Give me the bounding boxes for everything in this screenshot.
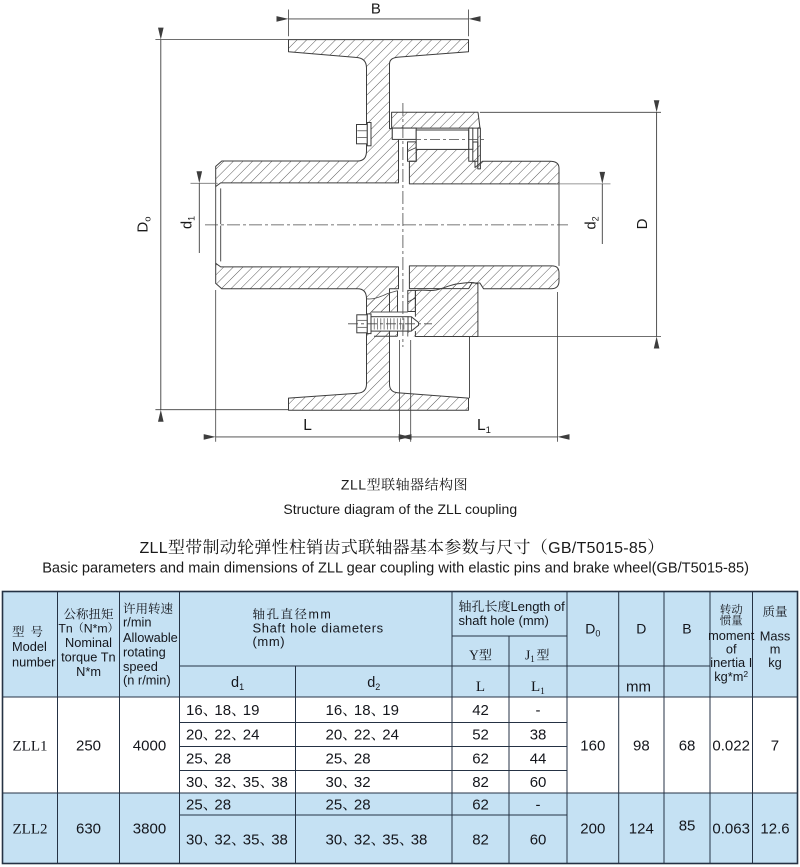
svg-text:N*m: N*m [76, 664, 101, 679]
svg-text:kg*m2: kg*m2 [714, 669, 748, 684]
svg-text:32: 32 [354, 832, 371, 849]
svg-text:19: 19 [382, 702, 399, 719]
svg-text:82: 82 [472, 774, 489, 791]
svg-text:24: 24 [382, 726, 399, 743]
svg-text:r/min: r/min [123, 615, 151, 630]
svg-text:32: 32 [214, 774, 231, 791]
svg-text:12.6: 12.6 [760, 821, 789, 838]
svg-text:(mm): (mm) [253, 634, 286, 649]
svg-text:-: - [536, 702, 541, 719]
svg-text:250: 250 [76, 738, 101, 755]
svg-text:inertia I: inertia I [710, 655, 752, 670]
svg-text:20: 20 [326, 726, 343, 743]
svg-text:44: 44 [530, 750, 547, 767]
svg-text:25: 25 [186, 750, 203, 767]
svg-text:160: 160 [580, 738, 605, 755]
svg-text:3800: 3800 [133, 821, 166, 838]
svg-text:30: 30 [186, 832, 203, 849]
svg-text:(n r/min): (n r/min) [123, 673, 171, 688]
svg-text:kg: kg [768, 655, 782, 670]
svg-text:Tn: Tn [58, 622, 73, 636]
svg-text:ZLL1: ZLL1 [13, 739, 48, 755]
svg-text:ZLL: ZLL [341, 477, 367, 493]
svg-text:82: 82 [472, 832, 489, 849]
svg-text:D: D [636, 621, 646, 637]
svg-text:35: 35 [243, 832, 260, 849]
svg-text:B: B [371, 1, 381, 18]
svg-text:20: 20 [186, 726, 203, 743]
svg-text:28: 28 [214, 796, 231, 813]
svg-text:Structure diagram of the ZLL c: Structure diagram of the ZLL coupling [283, 501, 517, 517]
svg-text:D: D [634, 218, 651, 229]
svg-text:18: 18 [214, 702, 231, 719]
svg-text:rotating: rotating [123, 645, 166, 660]
svg-text:L: L [476, 679, 485, 695]
svg-text:28: 28 [354, 796, 371, 813]
svg-text:shaft hole (mm): shaft hole (mm) [459, 613, 549, 628]
svg-text:30: 30 [326, 774, 343, 791]
svg-text:38: 38 [271, 774, 288, 791]
svg-text:19: 19 [243, 702, 260, 719]
svg-text:42: 42 [472, 702, 489, 719]
svg-text:32: 32 [354, 774, 371, 791]
svg-text:38: 38 [411, 832, 428, 849]
svg-text:16: 16 [326, 702, 343, 719]
svg-text:0.063: 0.063 [712, 821, 750, 838]
svg-text:30: 30 [186, 774, 203, 791]
svg-text:torque Tn: torque Tn [61, 650, 116, 665]
svg-text:85: 85 [679, 818, 696, 835]
svg-text:62: 62 [472, 750, 489, 767]
svg-text:68: 68 [679, 738, 696, 755]
svg-text:35: 35 [382, 832, 399, 849]
svg-text:N*m: N*m [84, 622, 108, 636]
svg-text:124: 124 [629, 821, 654, 838]
svg-text:60: 60 [530, 832, 547, 849]
svg-text:Nominal: Nominal [65, 635, 112, 650]
svg-text:16: 16 [186, 702, 203, 719]
svg-text:ZLL: ZLL [140, 540, 168, 557]
svg-text:52: 52 [472, 726, 489, 743]
svg-text:22: 22 [354, 726, 371, 743]
svg-text:60: 60 [530, 774, 547, 791]
svg-text:200: 200 [580, 821, 605, 838]
svg-text:Y: Y [469, 648, 479, 663]
svg-text:number: number [12, 655, 56, 670]
svg-text:25: 25 [326, 796, 343, 813]
svg-text:0.022: 0.022 [712, 738, 750, 755]
svg-text:mm: mm [309, 608, 333, 622]
svg-text:Allowable: Allowable [123, 630, 178, 645]
svg-text:25: 25 [326, 750, 343, 767]
svg-text:38: 38 [530, 726, 547, 743]
svg-text:mm: mm [626, 679, 651, 696]
svg-text:22: 22 [214, 726, 231, 743]
svg-text:25: 25 [186, 796, 203, 813]
svg-text:Basic parameters and main dime: Basic parameters and main dimensions of … [42, 561, 749, 577]
svg-text:4000: 4000 [133, 738, 166, 755]
svg-text:18: 18 [354, 702, 371, 719]
svg-text:L: L [303, 417, 312, 434]
svg-text:-: - [536, 796, 541, 813]
svg-text:B: B [682, 621, 691, 637]
svg-text:32: 32 [214, 832, 231, 849]
svg-text:GB/T5015-85: GB/T5015-85 [548, 540, 647, 557]
svg-text:ZLL2: ZLL2 [13, 822, 48, 838]
svg-text:630: 630 [76, 821, 101, 838]
svg-text:35: 35 [243, 774, 260, 791]
svg-text:24: 24 [243, 726, 260, 743]
svg-text:28: 28 [214, 750, 231, 767]
svg-text:30: 30 [326, 832, 343, 849]
svg-text:98: 98 [633, 738, 650, 755]
svg-text:38: 38 [271, 832, 288, 849]
svg-text:62: 62 [472, 796, 489, 813]
svg-text:Model: Model [12, 639, 47, 654]
svg-text:28: 28 [354, 750, 371, 767]
svg-text:7: 7 [771, 738, 779, 755]
svg-text:Length of: Length of [511, 599, 566, 614]
